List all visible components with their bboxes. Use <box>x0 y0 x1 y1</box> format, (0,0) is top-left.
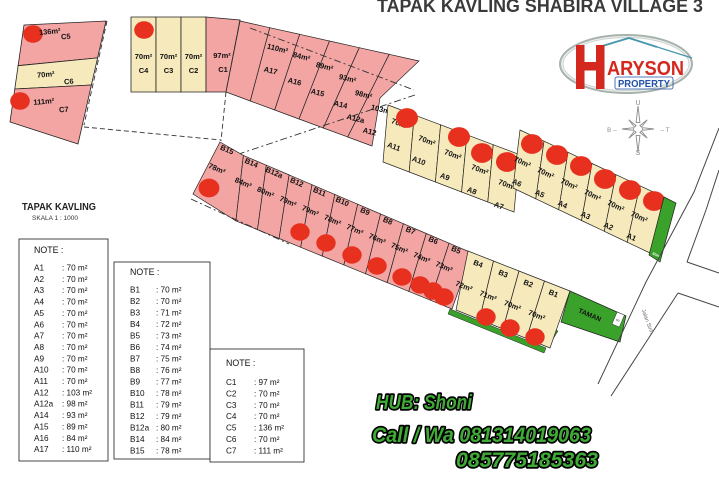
svg-text:: 70 m²: : 70 m² <box>62 309 88 318</box>
svg-text:: 70 m²: : 70 m² <box>62 320 88 329</box>
svg-text:B14: B14 <box>130 435 145 444</box>
svg-text:-- T: -- T <box>660 128 670 134</box>
svg-text:C6: C6 <box>64 77 74 87</box>
svg-text:085775185363: 085775185363 <box>456 449 598 472</box>
svg-text:A10: A10 <box>34 366 49 375</box>
svg-text:: 89 m²: : 89 m² <box>62 422 88 431</box>
svg-text:: 79 m²: : 79 m² <box>156 412 182 421</box>
svg-text:: 110 m²: : 110 m² <box>62 445 92 454</box>
svg-text:: 70 m²: : 70 m² <box>62 366 88 375</box>
svg-text:B11: B11 <box>130 401 144 410</box>
svg-text:B12a: B12a <box>130 424 150 433</box>
svg-text:136m²: 136m² <box>39 26 62 37</box>
svg-text:: 78 m²: : 78 m² <box>156 389 182 398</box>
svg-text:PROPERTY: PROPERTY <box>618 79 670 90</box>
svg-text:A9: A9 <box>34 354 44 363</box>
svg-text:: 70 m²: : 70 m² <box>62 286 88 295</box>
svg-text:A1: A1 <box>34 264 44 273</box>
svg-text:: 75 m²: : 75 m² <box>156 355 182 364</box>
svg-text:A7: A7 <box>34 332 44 341</box>
svg-text:: 79 m²: : 79 m² <box>156 401 182 410</box>
svg-text:TAPAK KAVLING: TAPAK KAVLING <box>22 202 96 213</box>
svg-text:B2: B2 <box>130 297 140 306</box>
svg-text:A3: A3 <box>34 286 44 295</box>
svg-text:70m²: 70m² <box>37 69 56 80</box>
svg-text:70m²: 70m² <box>135 52 153 61</box>
svg-text:: 80 m²: : 80 m² <box>156 424 182 433</box>
svg-text:: 76 m²: : 76 m² <box>156 366 182 375</box>
svg-text:C4: C4 <box>226 412 237 421</box>
svg-text:A12a: A12a <box>34 400 54 409</box>
svg-text:C7: C7 <box>226 447 237 456</box>
svg-text:A14: A14 <box>34 411 49 420</box>
svg-text:A16: A16 <box>34 434 49 443</box>
svg-text:S: S <box>636 150 641 157</box>
svg-text:B7: B7 <box>130 355 140 364</box>
svg-text:: 70 m²: : 70 m² <box>254 401 280 410</box>
svg-text:Call / Wa 081314019063: Call / Wa 081314019063 <box>372 424 591 447</box>
svg-text:: 72 m²: : 72 m² <box>156 320 182 329</box>
svg-text:C2: C2 <box>226 389 237 398</box>
svg-text:C6: C6 <box>226 435 237 444</box>
svg-text:: 84 m²: : 84 m² <box>62 434 88 443</box>
svg-text:C5: C5 <box>226 424 237 433</box>
svg-text:A6: A6 <box>34 320 44 329</box>
svg-text:: 70 m²: : 70 m² <box>62 275 88 284</box>
svg-text:B5: B5 <box>130 332 140 341</box>
svg-text:: 136 m²: : 136 m² <box>254 424 284 433</box>
svg-text:: 78 m²: : 78 m² <box>156 447 182 456</box>
svg-text:B --: B -- <box>607 128 617 134</box>
svg-text:C3: C3 <box>226 401 237 410</box>
svg-text:: 70 m²: : 70 m² <box>62 332 88 341</box>
svg-text:: 97 m²: : 97 m² <box>254 378 280 387</box>
svg-text:: 70 m²: : 70 m² <box>156 297 182 306</box>
svg-text:C5: C5 <box>61 32 71 42</box>
svg-text:: 70 m²: : 70 m² <box>62 377 88 386</box>
svg-text:NOTE :: NOTE : <box>130 267 159 277</box>
svg-text:: 70 m²: : 70 m² <box>62 343 88 352</box>
svg-text:: 70 m²: : 70 m² <box>254 435 280 444</box>
svg-text:: 93 m²: : 93 m² <box>62 411 88 420</box>
svg-text:HUB: Shoni: HUB: Shoni <box>376 392 472 414</box>
svg-text:B10: B10 <box>130 389 145 398</box>
svg-text:A15: A15 <box>34 422 49 431</box>
svg-text:A4: A4 <box>34 298 44 307</box>
svg-text:C3: C3 <box>164 66 174 75</box>
svg-text:C2: C2 <box>189 66 199 75</box>
svg-text:B3: B3 <box>130 309 140 318</box>
svg-text:: 70 m²: : 70 m² <box>62 354 88 363</box>
svg-text:NOTE :: NOTE : <box>226 358 255 368</box>
svg-text:C4: C4 <box>139 66 149 75</box>
svg-text:NOTE :: NOTE : <box>34 245 63 255</box>
svg-text:: 70 m²: : 70 m² <box>254 412 280 421</box>
svg-text:TAPAK KAVLING SHABIRA VILLAGE: TAPAK KAVLING SHABIRA VILLAGE 3 <box>377 0 703 16</box>
svg-text:B15: B15 <box>130 447 145 456</box>
svg-text:C1: C1 <box>218 65 228 74</box>
svg-text:B1: B1 <box>130 286 140 295</box>
svg-text:: 111 m²: : 111 m² <box>254 447 283 456</box>
svg-text:: 70 m²: : 70 m² <box>62 298 88 307</box>
svg-text:: 70 m²: : 70 m² <box>156 286 182 295</box>
svg-text:C7: C7 <box>59 105 69 115</box>
svg-text:70m²: 70m² <box>160 52 178 61</box>
svg-text:70m²: 70m² <box>185 52 203 61</box>
svg-text:A11: A11 <box>34 377 48 386</box>
svg-text:C1: C1 <box>226 378 237 387</box>
svg-text:97m²: 97m² <box>213 51 231 60</box>
svg-text:B12: B12 <box>130 412 145 421</box>
svg-text:B9: B9 <box>130 378 140 387</box>
svg-text:A12: A12 <box>34 388 49 397</box>
svg-text:: 73 m²: : 73 m² <box>156 332 182 341</box>
svg-text:B4: B4 <box>130 320 140 329</box>
svg-text:: 98 m²: : 98 m² <box>62 400 88 409</box>
svg-text:: 74 m²: : 74 m² <box>156 343 182 352</box>
svg-text:: 84 m²: : 84 m² <box>156 435 182 444</box>
svg-text:: 71 m²: : 71 m² <box>156 309 182 318</box>
svg-text:: 77 m²: : 77 m² <box>156 378 182 387</box>
svg-text:: 70 m²: : 70 m² <box>254 389 280 398</box>
svg-text:B6: B6 <box>130 343 140 352</box>
svg-text:A2: A2 <box>34 275 44 284</box>
svg-text:: 70 m²: : 70 m² <box>62 264 88 273</box>
svg-text:SKALA 1 : 1000: SKALA 1 : 1000 <box>32 215 78 222</box>
svg-text:A8: A8 <box>34 343 44 352</box>
svg-text:A5: A5 <box>34 309 44 318</box>
svg-text:111m²: 111m² <box>33 96 55 107</box>
svg-text:U: U <box>635 100 640 107</box>
svg-text:B8: B8 <box>130 366 140 375</box>
svg-text:A17: A17 <box>34 445 49 454</box>
svg-text:: 103 m²: : 103 m² <box>62 388 92 397</box>
